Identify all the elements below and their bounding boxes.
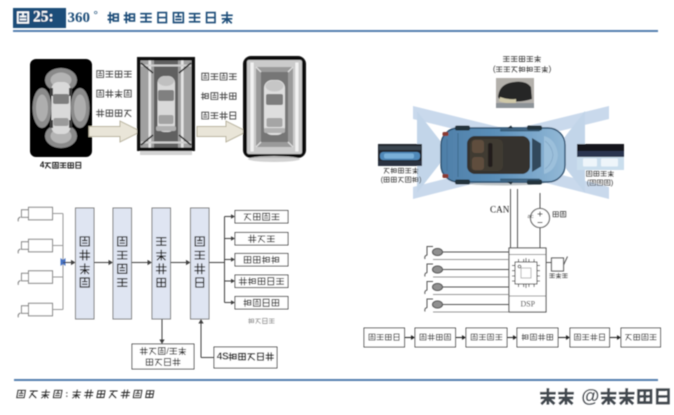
svg-text:(: (: [587, 178, 590, 187]
svg-text:@: @: [581, 385, 599, 406]
svg-text:4S: 4S: [217, 352, 229, 363]
svg-text:4: 4: [40, 161, 45, 170]
svg-text:DSP: DSP: [521, 300, 536, 309]
svg-text:): ): [419, 175, 422, 184]
svg-text:(: (: [493, 65, 496, 74]
svg-text:CAN: CAN: [490, 205, 510, 215]
svg-text:/: /: [166, 346, 169, 357]
svg-text:360: 360: [68, 10, 91, 26]
svg-text:(: (: [381, 175, 384, 184]
svg-text:°: °: [94, 9, 98, 21]
svg-text:25:: 25:: [33, 8, 54, 25]
svg-text:ac: ac: [528, 214, 534, 220]
svg-text:): ): [611, 178, 614, 187]
svg-text:): ): [549, 65, 552, 74]
